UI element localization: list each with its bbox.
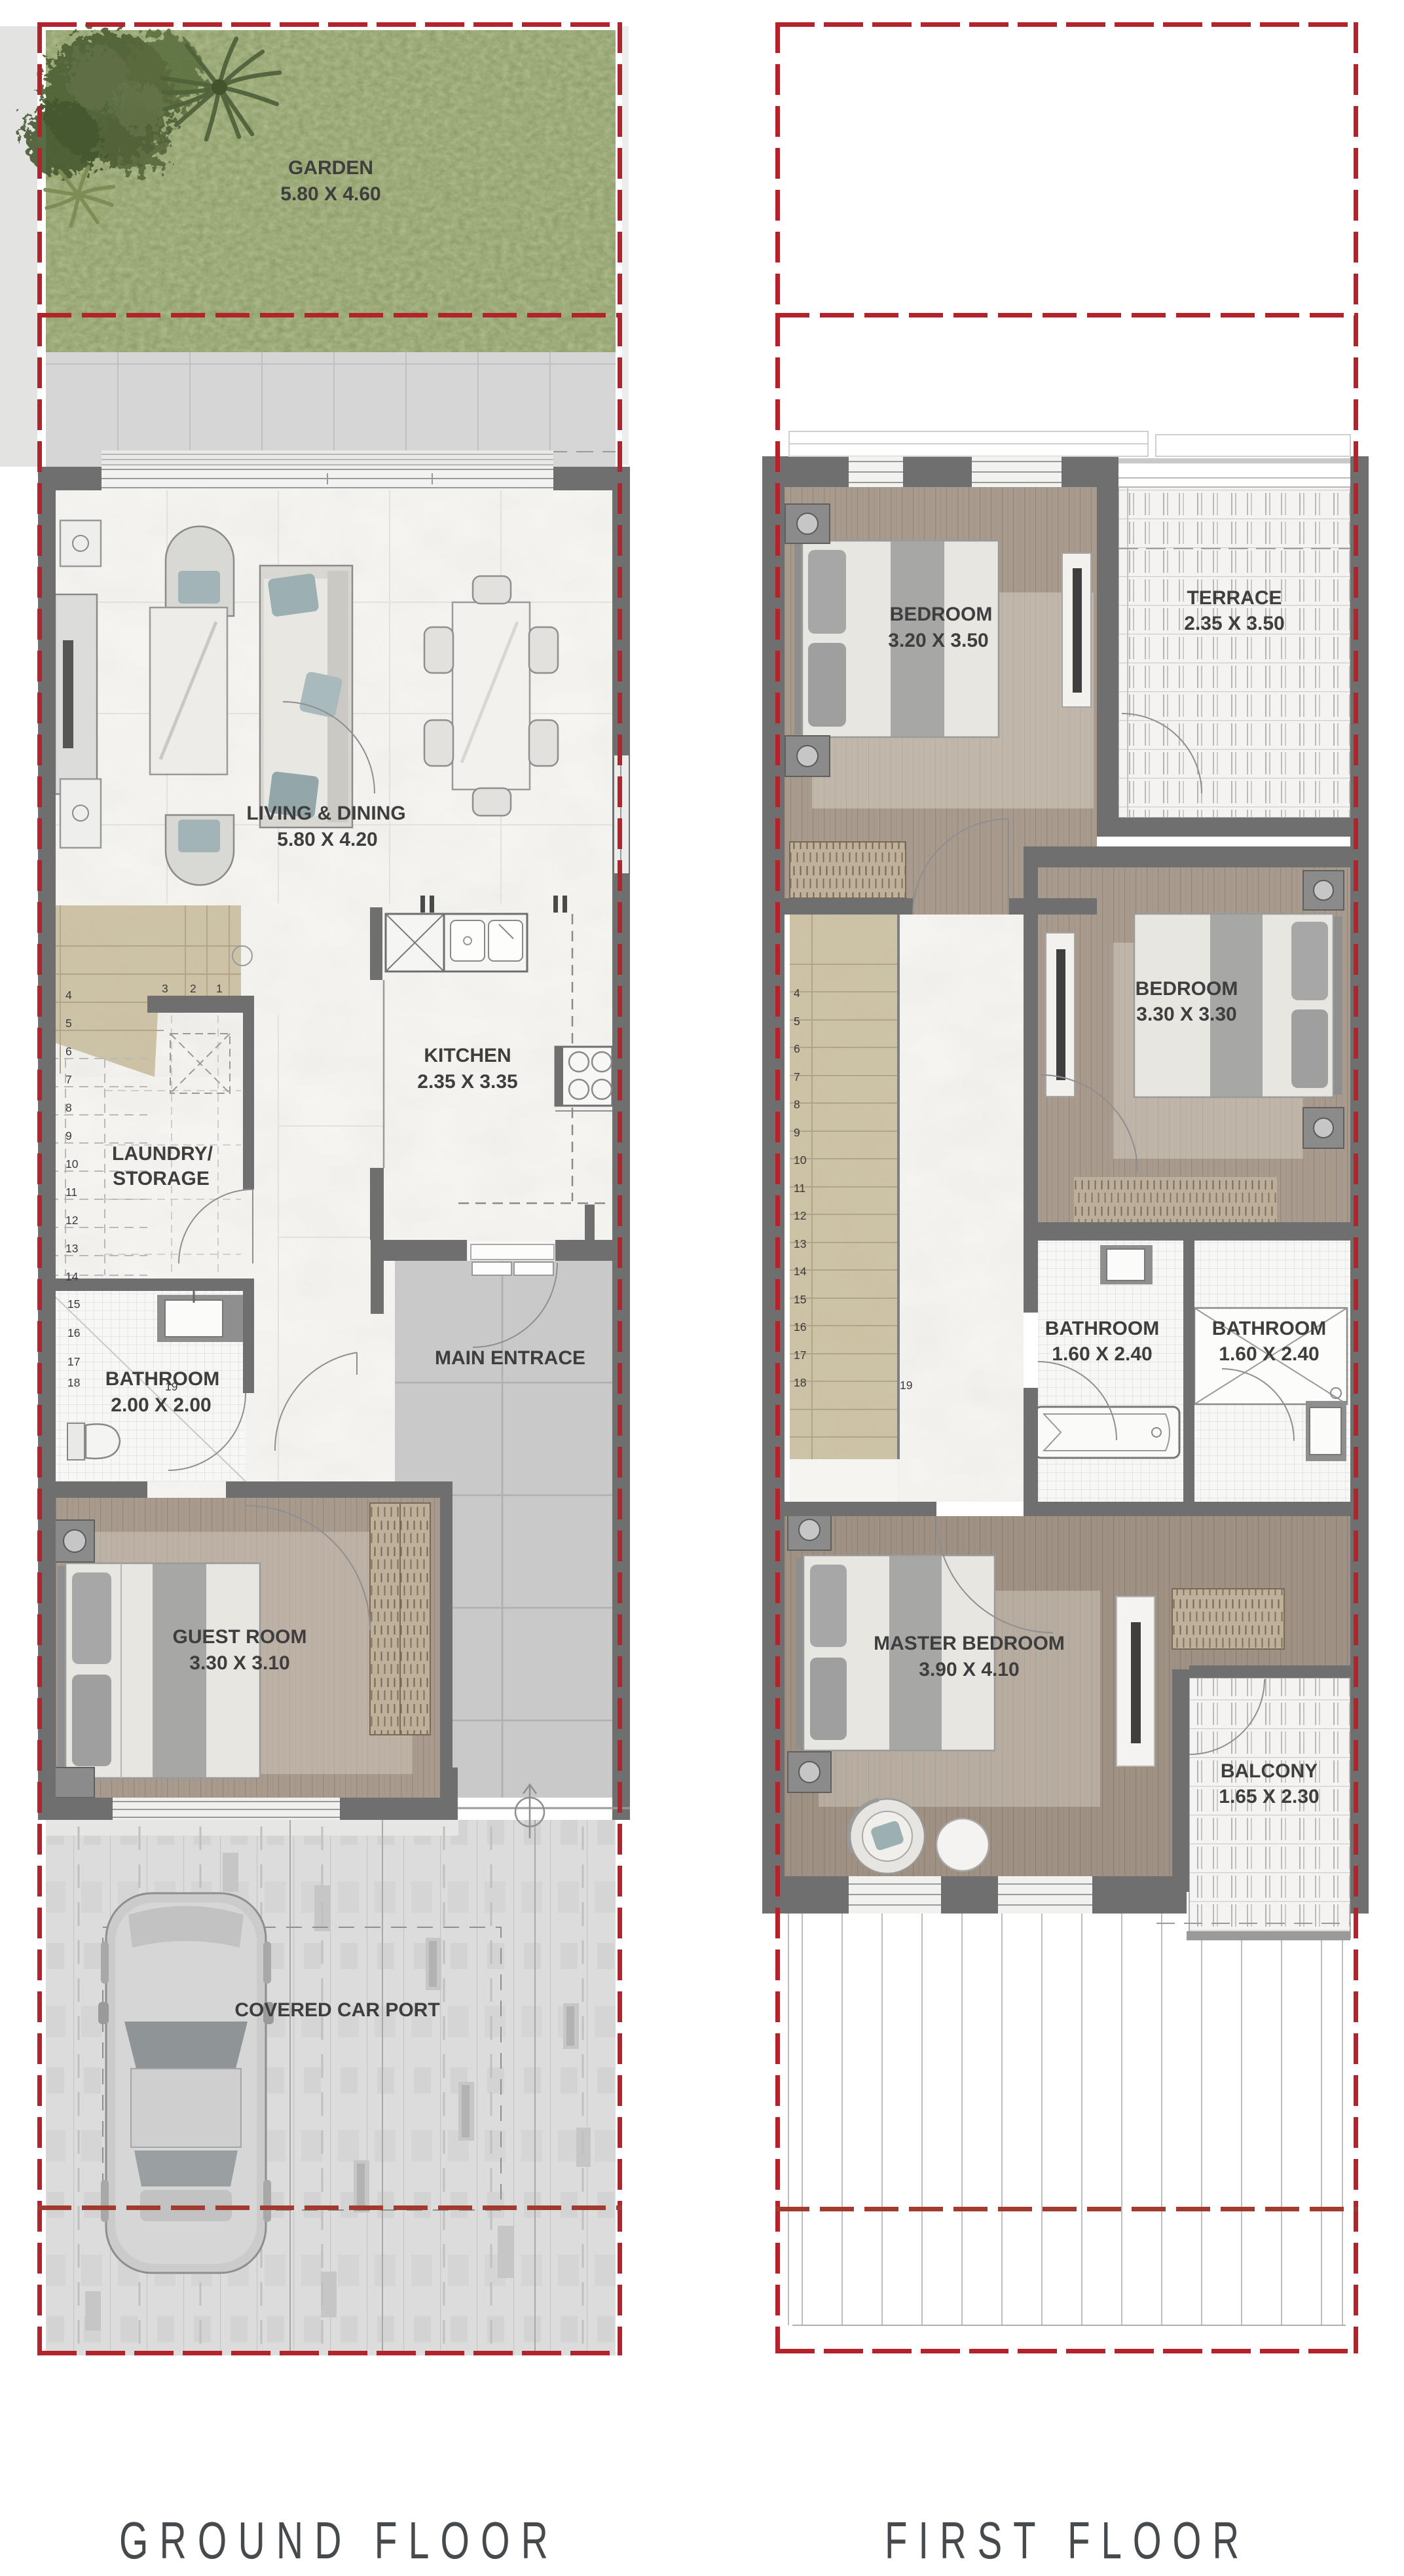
svg-text:4: 4	[794, 987, 800, 1000]
svg-text:11: 11	[65, 1186, 77, 1199]
svg-text:19: 19	[165, 1380, 177, 1393]
svg-text:BEDROOM: BEDROOM	[890, 604, 993, 625]
svg-text:2.35 X 3.50: 2.35 X 3.50	[1184, 613, 1284, 634]
svg-text:13: 13	[65, 1242, 78, 1255]
svg-text:5.80 X 4.60: 5.80 X 4.60	[280, 183, 380, 205]
svg-text:GARDEN: GARDEN	[288, 157, 373, 179]
svg-text:FIRST FLOOR: FIRST FLOOR	[885, 2511, 1250, 2569]
svg-text:10: 10	[65, 1157, 79, 1170]
svg-text:KITCHEN: KITCHEN	[424, 1045, 511, 1066]
svg-text:15: 15	[794, 1293, 806, 1306]
svg-text:BATHROOM: BATHROOM	[1045, 1318, 1159, 1339]
svg-text:5: 5	[794, 1015, 800, 1028]
svg-text:BEDROOM: BEDROOM	[1136, 978, 1238, 1000]
svg-text:17: 17	[67, 1355, 80, 1368]
svg-text:8: 8	[794, 1098, 800, 1111]
svg-text:MASTER BEDROOM: MASTER BEDROOM	[874, 1633, 1065, 1654]
svg-text:STORAGE: STORAGE	[113, 1168, 210, 1189]
svg-text:6: 6	[65, 1045, 72, 1058]
svg-text:GROUND FLOOR: GROUND FLOOR	[119, 2511, 559, 2569]
svg-text:16: 16	[794, 1320, 806, 1333]
svg-text:TERRACE: TERRACE	[1187, 587, 1282, 609]
svg-text:MAIN ENTRACE: MAIN ENTRACE	[435, 1347, 585, 1369]
svg-text:2.00 X 2.00: 2.00 X 2.00	[111, 1394, 211, 1416]
svg-text:LAUNDRY/: LAUNDRY/	[112, 1143, 213, 1165]
svg-text:13: 13	[794, 1237, 806, 1250]
svg-text:2.35 X 3.35: 2.35 X 3.35	[417, 1071, 517, 1093]
svg-text:1.65 X 2.30: 1.65 X 2.30	[1219, 1786, 1319, 1807]
svg-text:5.80 X 4.20: 5.80 X 4.20	[277, 829, 377, 850]
svg-text:5: 5	[65, 1017, 72, 1030]
svg-text:6: 6	[794, 1042, 800, 1055]
svg-text:7: 7	[794, 1070, 800, 1083]
svg-text:12: 12	[794, 1209, 806, 1222]
svg-text:3.30 X 3.10: 3.30 X 3.10	[189, 1652, 289, 1674]
svg-text:9: 9	[65, 1129, 72, 1142]
svg-text:3: 3	[162, 982, 168, 995]
svg-text:BATHROOM: BATHROOM	[105, 1368, 219, 1390]
svg-text:1: 1	[216, 982, 223, 995]
svg-text:14: 14	[794, 1265, 807, 1278]
svg-text:10: 10	[794, 1153, 807, 1167]
svg-text:1.60 X 2.40: 1.60 X 2.40	[1052, 1343, 1152, 1365]
svg-text:15: 15	[67, 1297, 80, 1311]
svg-text:9: 9	[794, 1126, 800, 1139]
svg-text:BALCONY: BALCONY	[1221, 1760, 1318, 1782]
svg-text:8: 8	[65, 1101, 72, 1114]
svg-text:3.20 X 3.50: 3.20 X 3.50	[888, 630, 988, 651]
svg-text:16: 16	[67, 1326, 80, 1339]
svg-text:18: 18	[67, 1376, 80, 1389]
svg-text:1.60 X 2.40: 1.60 X 2.40	[1219, 1343, 1319, 1365]
svg-text:3.30 X 3.30: 3.30 X 3.30	[1136, 1004, 1236, 1025]
svg-text:LIVING & DINING: LIVING & DINING	[246, 803, 405, 824]
svg-text:12: 12	[65, 1214, 78, 1227]
svg-text:17: 17	[794, 1349, 806, 1362]
svg-text:18: 18	[794, 1376, 806, 1389]
svg-text:7: 7	[65, 1073, 72, 1086]
svg-text:2: 2	[190, 982, 196, 995]
svg-text:COVERED CAR PORT: COVERED CAR PORT	[234, 1999, 439, 2021]
svg-text:19: 19	[900, 1379, 912, 1392]
svg-text:11: 11	[794, 1182, 805, 1195]
svg-text:BATHROOM: BATHROOM	[1212, 1318, 1326, 1339]
svg-text:14: 14	[65, 1270, 79, 1283]
svg-text:GUEST ROOM: GUEST ROOM	[172, 1626, 306, 1648]
svg-text:4: 4	[65, 989, 72, 1002]
svg-text:3.90 X 4.10: 3.90 X 4.10	[919, 1659, 1019, 1680]
